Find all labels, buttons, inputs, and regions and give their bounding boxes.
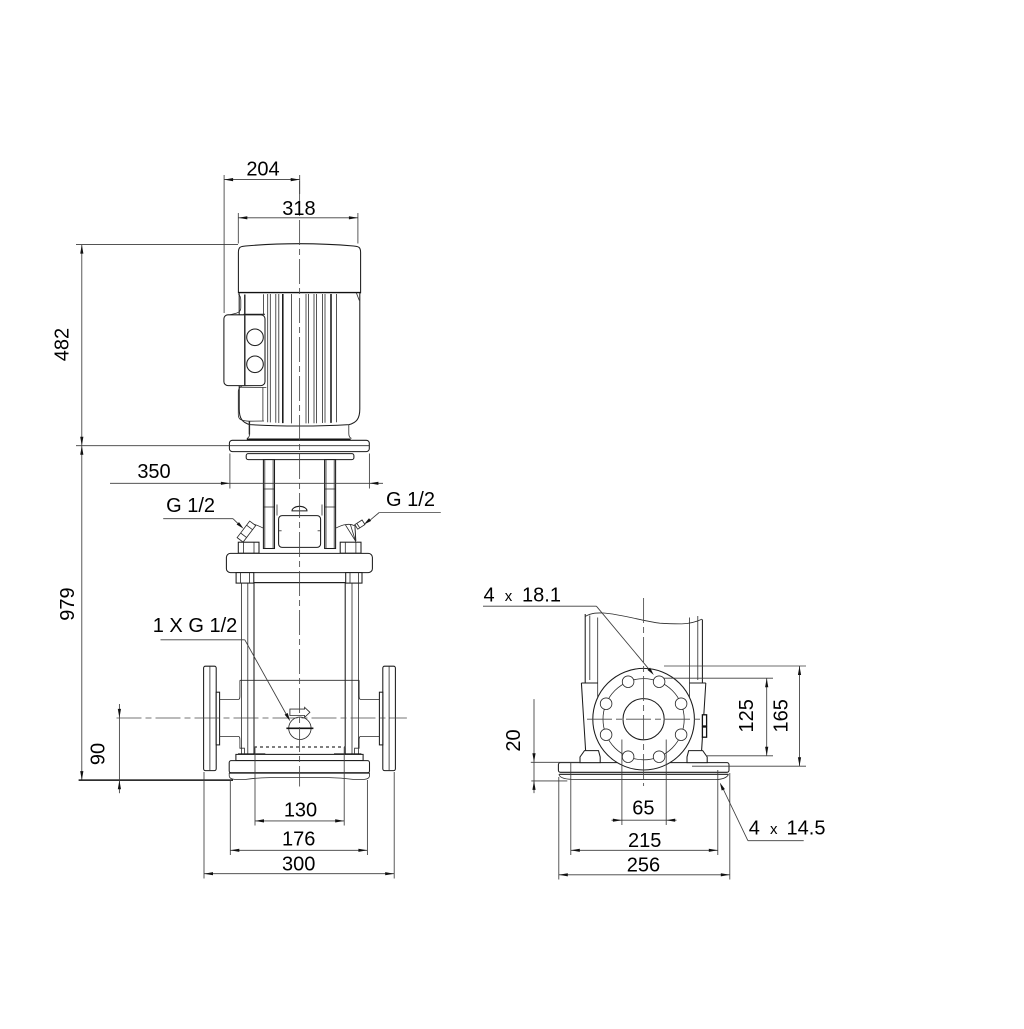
svg-text:x: x <box>770 821 778 838</box>
svg-text:20: 20 <box>503 729 525 751</box>
svg-text:90: 90 <box>88 743 110 765</box>
svg-text:4: 4 <box>483 585 494 607</box>
svg-text:204: 204 <box>246 159 279 181</box>
svg-text:256: 256 <box>627 855 660 877</box>
svg-text:979: 979 <box>57 587 79 620</box>
svg-text:G 1/2: G 1/2 <box>386 489 435 511</box>
svg-text:318: 318 <box>282 198 315 220</box>
svg-text:1 X G 1/2: 1 X G 1/2 <box>153 615 238 637</box>
svg-text:130: 130 <box>284 800 317 822</box>
svg-text:165: 165 <box>771 699 793 732</box>
svg-text:x: x <box>505 588 513 605</box>
svg-text:14.5: 14.5 <box>787 818 826 840</box>
svg-text:G 1/2: G 1/2 <box>166 495 215 517</box>
svg-text:18.1: 18.1 <box>522 585 561 607</box>
svg-text:350: 350 <box>137 461 170 483</box>
svg-text:482: 482 <box>52 328 74 361</box>
svg-text:176: 176 <box>282 829 315 851</box>
svg-text:4: 4 <box>749 818 760 840</box>
svg-text:125: 125 <box>736 699 758 732</box>
svg-text:300: 300 <box>282 854 315 876</box>
svg-text:215: 215 <box>628 830 661 852</box>
svg-text:65: 65 <box>632 798 654 820</box>
